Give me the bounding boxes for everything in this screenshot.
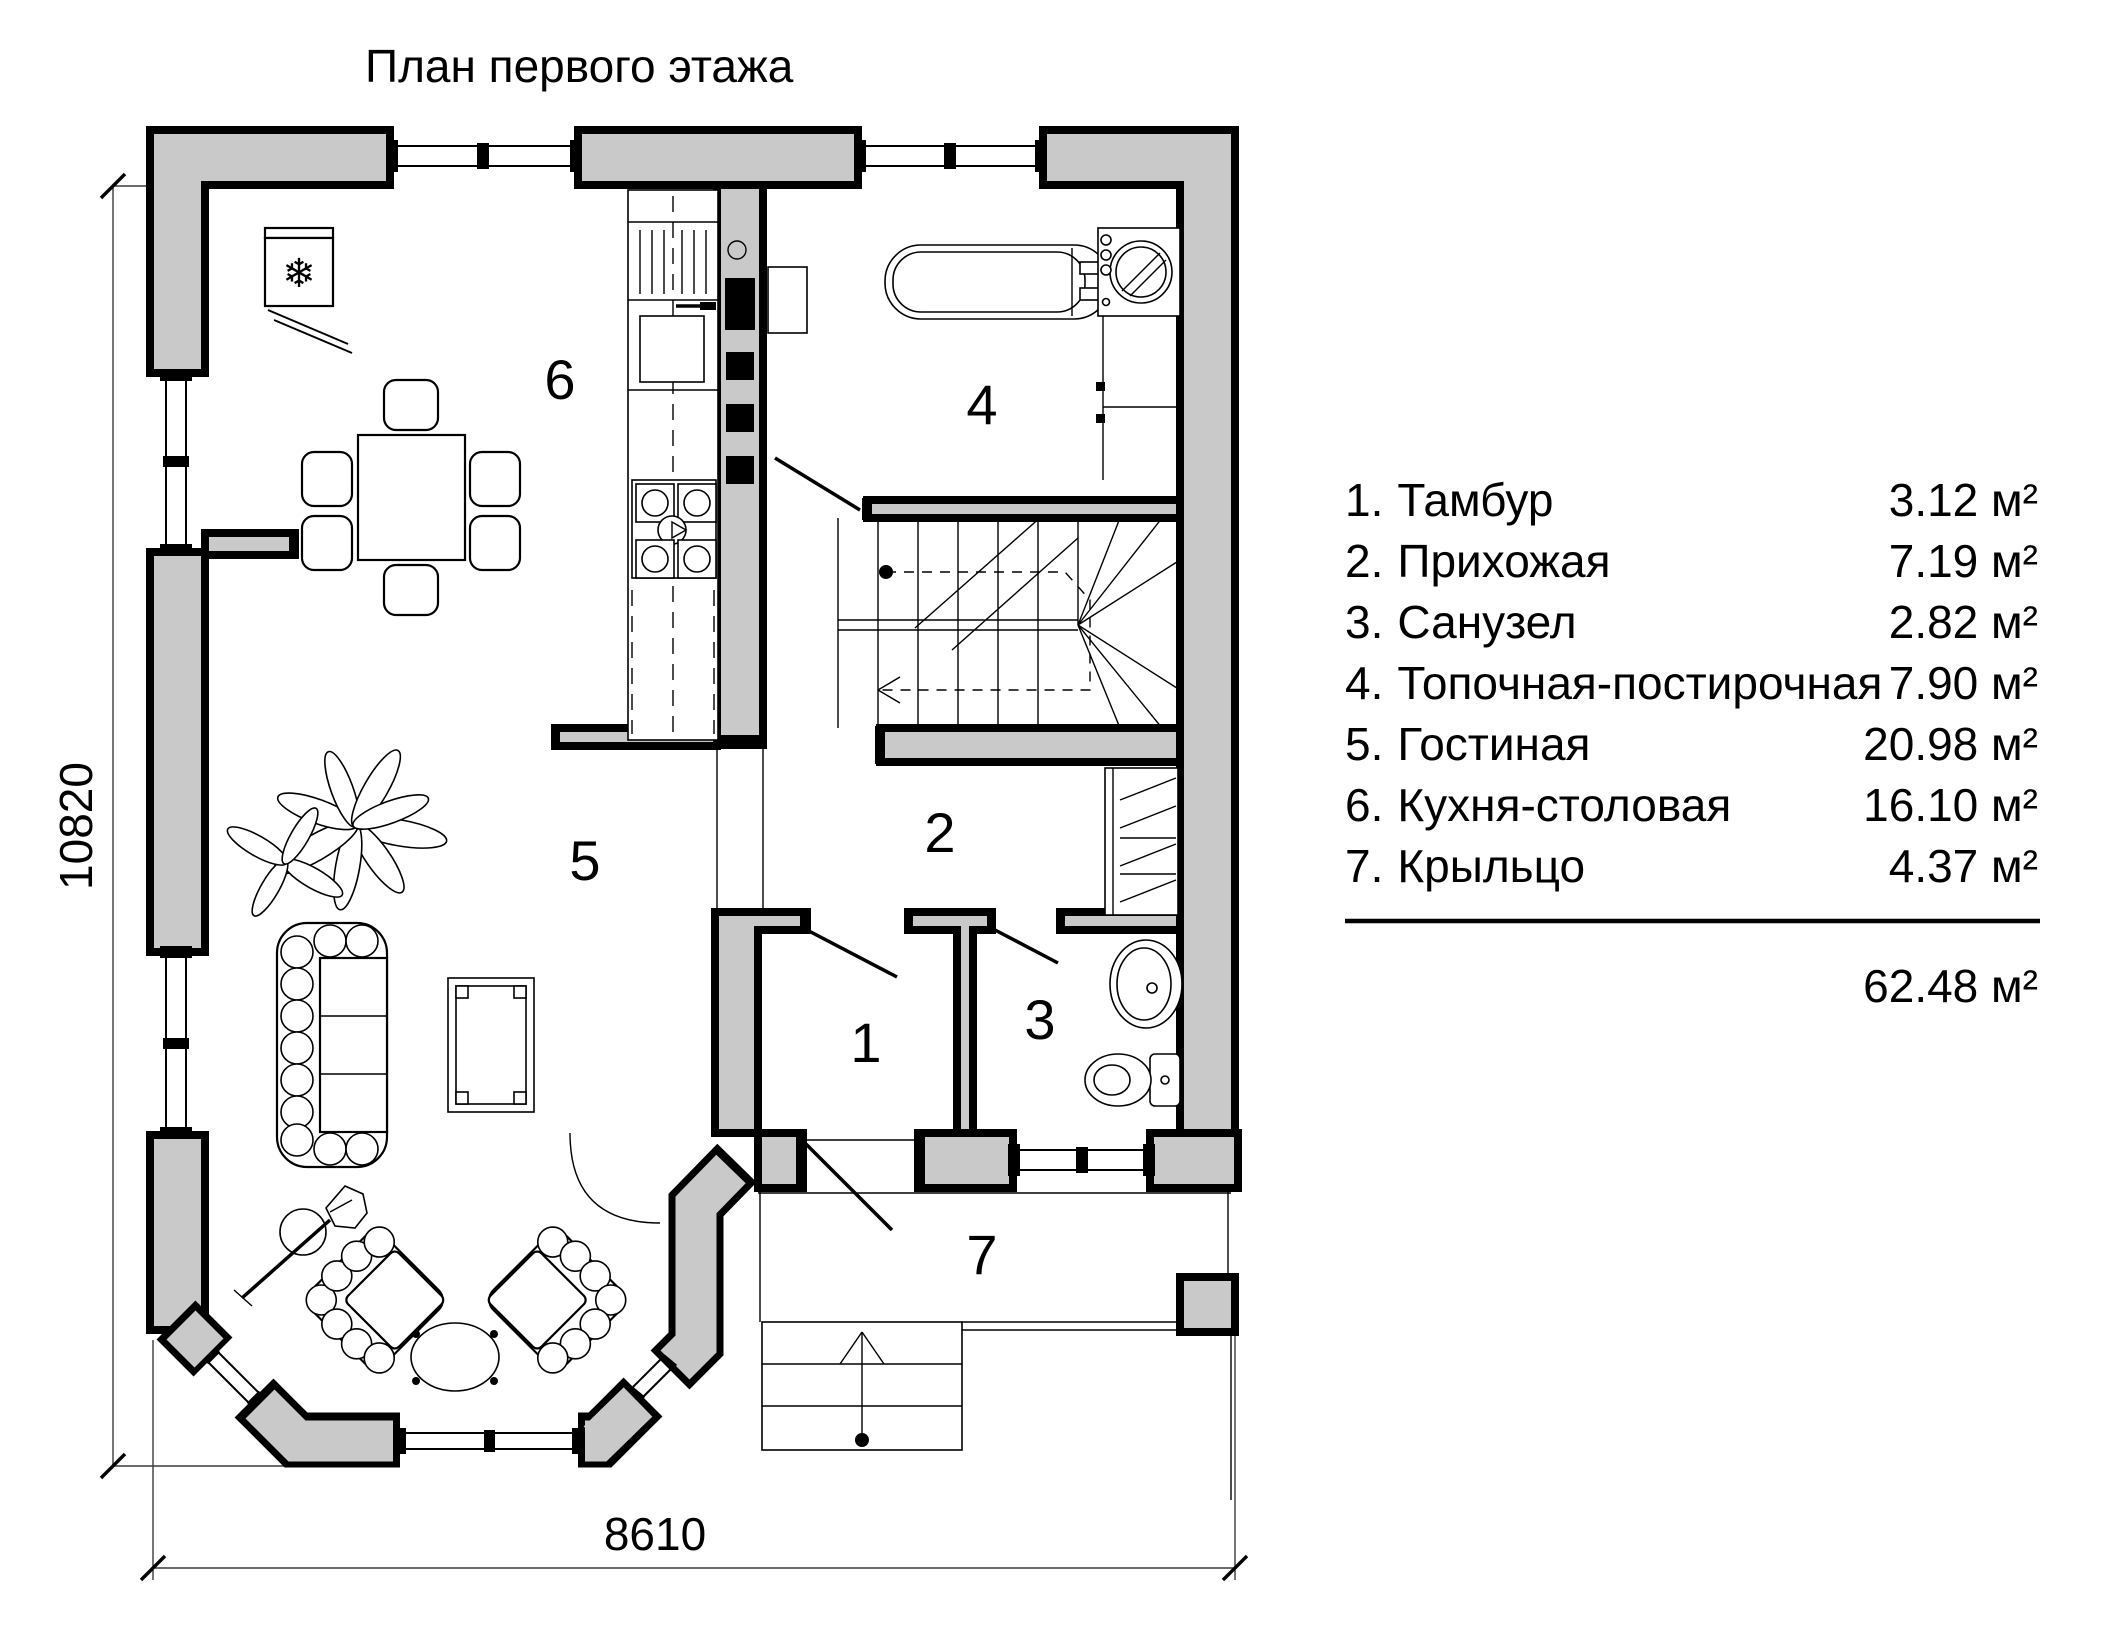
wall-kitchen-stub xyxy=(205,533,295,555)
legend-area: 7.19 м² xyxy=(1889,535,2038,587)
plant-symbol xyxy=(223,745,449,921)
legend-area: 4.37 м² xyxy=(1889,840,2038,892)
wall-bottom-2 xyxy=(918,1133,1013,1188)
legend-total-area: 62.48 м² xyxy=(1863,960,2038,1012)
wall-bottom-3 xyxy=(1150,1133,1238,1188)
door-bathroom-leaf xyxy=(995,930,1058,963)
room-label-5: 5 xyxy=(569,829,600,892)
legend-area: 16.10 м² xyxy=(1863,779,2038,831)
sofa-symbol xyxy=(277,923,387,1167)
wall-left-bay-pier xyxy=(150,1135,205,1330)
door-vestibule-leaf xyxy=(807,930,897,977)
legend-area: 2.82 м² xyxy=(1889,596,2038,648)
window-bottom-bathroom xyxy=(1008,1144,1155,1176)
legend-area: 20.98 м² xyxy=(1863,718,2038,770)
legend-row: 3.Санузел xyxy=(1345,596,1577,648)
dining-table-symbol xyxy=(302,380,520,615)
coffee-table-symbol xyxy=(448,978,534,1112)
legend-row: 2.Прихожая xyxy=(1345,535,1611,587)
page-title: План первого этажа xyxy=(365,40,794,92)
room-label-4: 4 xyxy=(966,373,997,436)
boiler-symbol xyxy=(768,267,807,333)
width-dimension-label: 8610 xyxy=(604,1508,706,1560)
dining-chair xyxy=(470,452,520,506)
wall-stairs-bottom xyxy=(880,728,1180,762)
height-dimension-label: 10820 xyxy=(50,762,102,890)
legend-area: 7.90 м² xyxy=(1889,657,2038,709)
room-label-1: 1 xyxy=(850,1011,881,1074)
window-left-upper xyxy=(160,369,192,556)
dining-chair xyxy=(384,565,438,615)
legend-area: 3.12 м² xyxy=(1889,474,2038,526)
washing-machine-symbol xyxy=(1098,228,1180,316)
window-bay-right xyxy=(632,1355,676,1398)
boiler-room-furniture xyxy=(768,228,1180,480)
window-top-1 xyxy=(386,140,582,172)
bathroom-fixtures xyxy=(1085,940,1182,1106)
legend-row: 4.Топочная-постирочная xyxy=(1345,657,1882,709)
legend-row: 7.Крыльцо xyxy=(1345,840,1585,892)
legend: 1.Тамбур 3.12 м² 2.Прихожая 7.19 м² 3.Са… xyxy=(1345,474,2040,1012)
window-bay-bottom xyxy=(396,1428,582,1454)
dining-chair xyxy=(302,516,352,570)
dining-chair xyxy=(470,516,520,570)
room-label-2: 2 xyxy=(924,801,955,864)
wardrobe-symbol xyxy=(1105,768,1178,915)
refrigerator-symbol: ❄ xyxy=(265,228,352,353)
dining-chair xyxy=(302,452,352,506)
wall-vestibule-left xyxy=(715,912,807,1133)
room-label-6: 6 xyxy=(544,348,575,411)
kitchen-counter-symbol xyxy=(628,190,718,740)
bay-window-walls xyxy=(176,1163,737,1441)
floor-plan-drawing: 10820 8610 xyxy=(0,0,2127,1652)
window-left-lower xyxy=(160,946,192,1139)
porch-column xyxy=(1180,1277,1235,1332)
toilet-symbol xyxy=(1085,1054,1180,1106)
wall-stairs-top xyxy=(867,500,1180,518)
kitchen-furniture: ❄ xyxy=(265,190,718,740)
legend-row: 6.Кухня-столовая xyxy=(1345,779,1731,831)
stove-symbol xyxy=(632,480,716,578)
entrance-steps xyxy=(762,1322,962,1450)
legend-row: 5.Гостиная xyxy=(1345,718,1590,770)
window-top-2 xyxy=(854,140,1047,172)
door-boiler-room-leaf xyxy=(775,458,860,510)
snowflake-icon: ❄ xyxy=(282,252,316,296)
room-label-7: 7 xyxy=(966,1223,997,1286)
legend-row: 1.Тамбур xyxy=(1345,474,1554,526)
sink-symbol xyxy=(1110,940,1182,1028)
wall-left-middle xyxy=(150,552,205,952)
wall-top-middle xyxy=(578,130,858,185)
bathtub-symbol xyxy=(885,245,1110,319)
side-table-symbol xyxy=(411,1323,499,1391)
staircase xyxy=(838,516,1180,728)
wall-vestibule-bathroom xyxy=(908,912,992,1133)
door-entrance-leaf xyxy=(806,1144,892,1230)
door-bay-arc xyxy=(570,1133,660,1223)
floor-plan-page: 10820 8610 xyxy=(0,0,2127,1652)
dining-chair xyxy=(384,380,438,430)
window-bay-left xyxy=(207,1351,260,1404)
room-label-3: 3 xyxy=(1024,988,1055,1051)
